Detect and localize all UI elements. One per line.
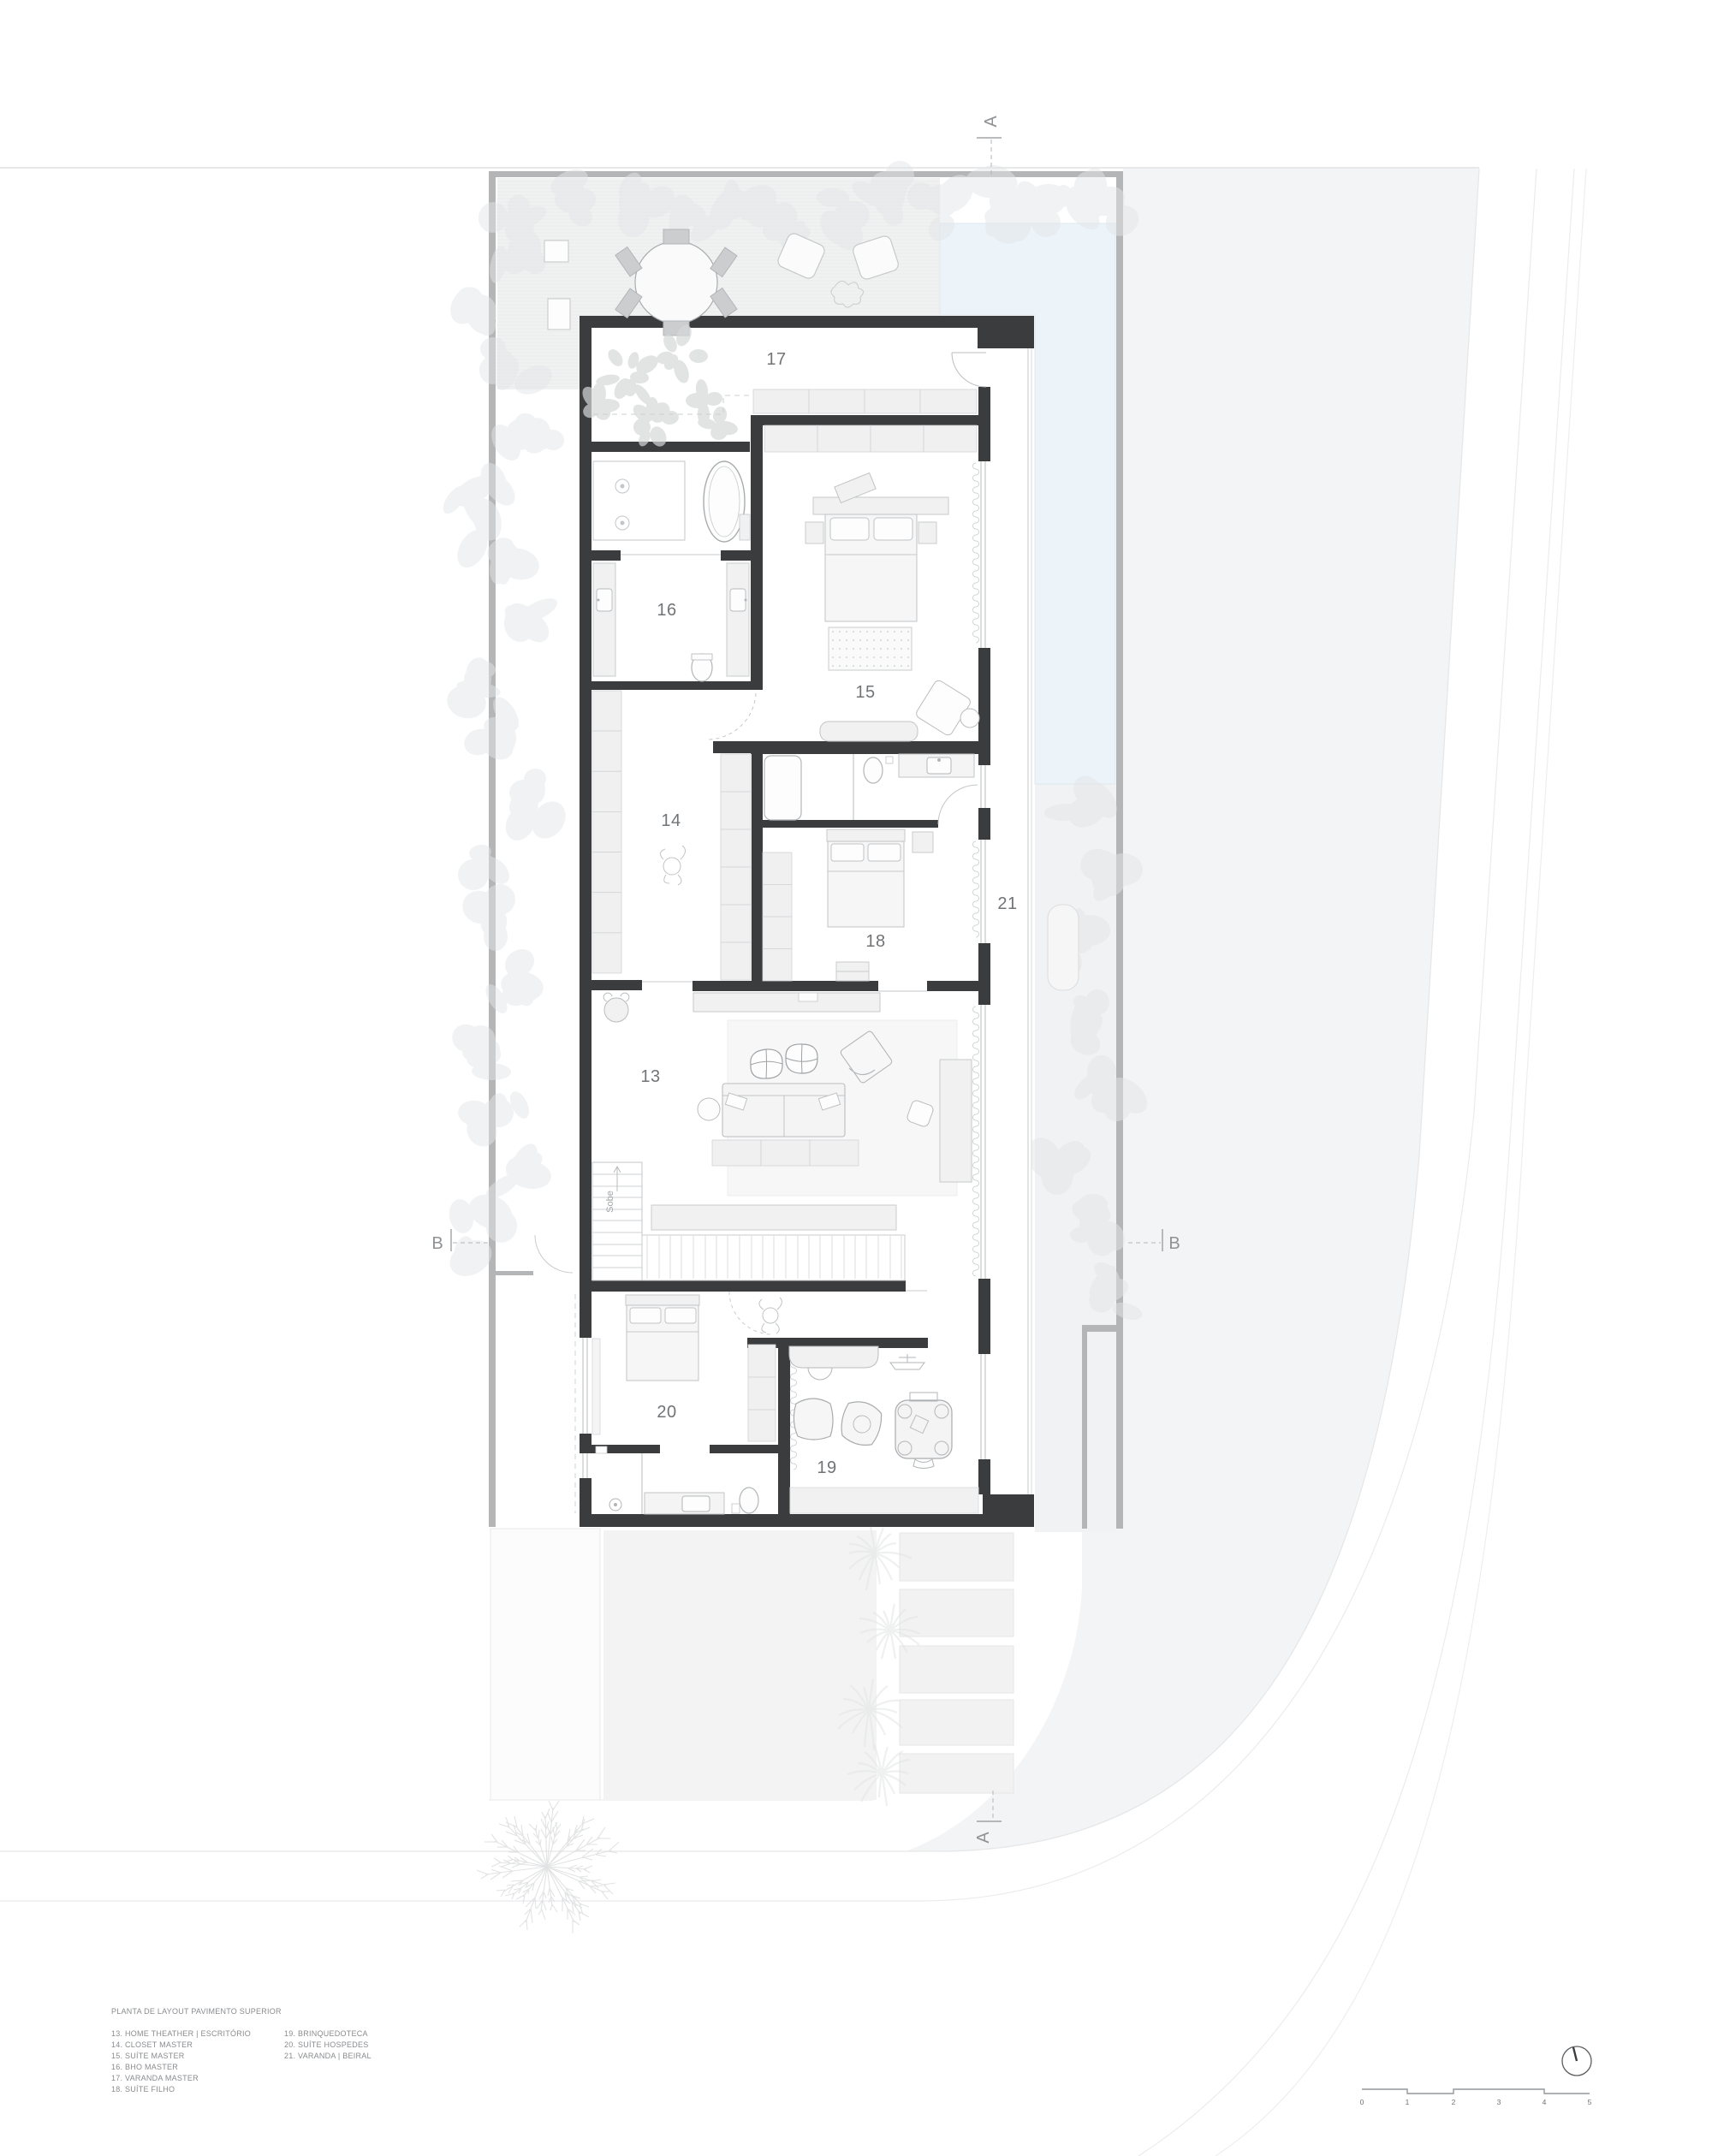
svg-text:14. CLOSET MASTER: 14. CLOSET MASTER [111,2040,193,2049]
svg-text:16: 16 [657,601,676,620]
svg-text:5: 5 [1588,2098,1592,2106]
svg-text:17. VARANDA MASTER: 17. VARANDA MASTER [111,2074,199,2082]
svg-text:B: B [1168,1234,1180,1253]
svg-text:4: 4 [1543,2098,1547,2106]
svg-text:B: B [431,1234,443,1253]
svg-text:21. VARANDA | BEIRAL: 21. VARANDA | BEIRAL [284,2052,372,2060]
svg-text:3: 3 [1497,2098,1501,2106]
svg-text:15: 15 [855,683,875,702]
svg-text:13. HOME THEATHER | ESCRITÓRIO: 13. HOME THEATHER | ESCRITÓRIO [111,2029,251,2038]
svg-text:18. SUÍTE FILHO: 18. SUÍTE FILHO [111,2085,175,2094]
svg-text:18: 18 [865,932,885,951]
svg-text:16. BHO MASTER: 16. BHO MASTER [111,2063,178,2071]
svg-text:21: 21 [997,894,1017,913]
svg-text:19: 19 [817,1458,836,1477]
svg-text:2: 2 [1452,2098,1456,2106]
svg-text:A: A [982,116,1001,128]
svg-text:13: 13 [640,1067,660,1086]
svg-text:19. BRINQUEDOTECA: 19. BRINQUEDOTECA [284,2029,368,2038]
svg-text:Sobe: Sobe [605,1191,615,1213]
svg-text:20. SUÍTE HOSPEDES: 20. SUÍTE HOSPEDES [284,2040,369,2049]
svg-text:A: A [974,1832,993,1844]
svg-text:PLANTA DE LAYOUT PAVIMENTO SUP: PLANTA DE LAYOUT PAVIMENTO SUPERIOR [111,2007,282,2016]
svg-text:15. SUÍTE MASTER: 15. SUÍTE MASTER [111,2052,185,2060]
svg-text:14: 14 [661,811,681,830]
svg-text:1: 1 [1406,2098,1410,2106]
svg-text:0: 0 [1360,2098,1364,2106]
svg-text:17: 17 [766,350,786,369]
svg-text:20: 20 [657,1403,676,1422]
